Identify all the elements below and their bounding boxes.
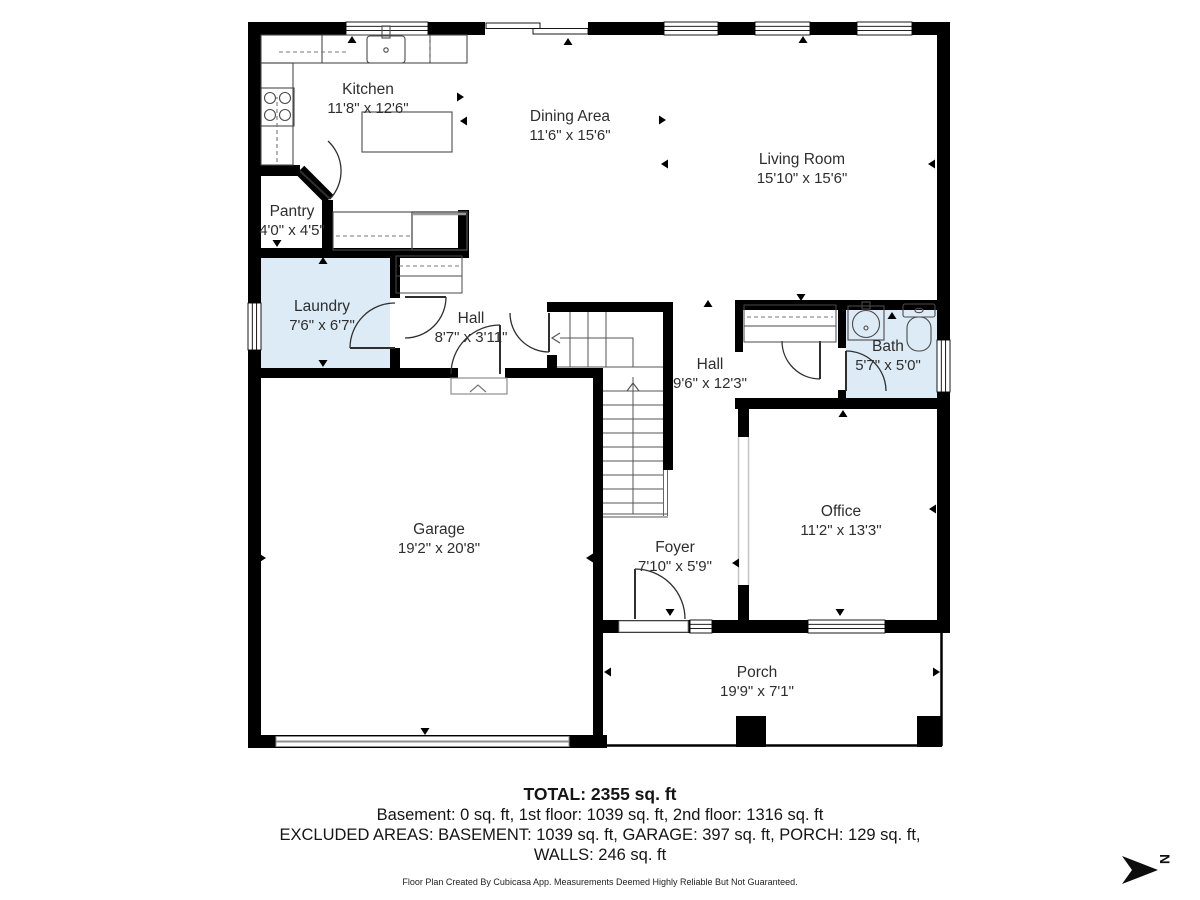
room-label-dining: Dining Area 11'6" x 15'6"	[529, 107, 610, 145]
living-window-2	[755, 22, 810, 35]
bath-window	[937, 340, 950, 392]
room-label-pantry: Pantry 4'0" x 4'5"	[259, 202, 325, 240]
floor-areas: Basement: 0 sq. ft, 1st floor: 1039 sq. …	[0, 805, 1200, 825]
room-label-porch: Porch 19'9" x 7'1"	[720, 663, 794, 701]
front-door	[635, 569, 685, 619]
room-dims: 7'6" x 6'7"	[289, 316, 355, 335]
total-area: TOTAL: 2355 sq. ft	[0, 784, 1200, 805]
floor-plan-page: Kitchen 11'8" x 12'6" Dining Area 11'6" …	[0, 0, 1200, 900]
kitchen-island	[362, 112, 452, 152]
room-name: Laundry	[289, 297, 355, 316]
thresholds	[451, 378, 688, 632]
stove-icon	[261, 88, 294, 126]
room-dims: 9'6" x 12'3"	[673, 374, 747, 393]
room-label-hall-large: Hall 9'6" x 12'3"	[673, 355, 747, 393]
room-name: Bath	[855, 337, 921, 356]
area-summary: TOTAL: 2355 sq. ft Basement: 0 sq. ft, 1…	[0, 784, 1200, 888]
stairs	[552, 312, 668, 517]
disclaimer-text: Floor Plan Created By Cubicasa App. Meas…	[0, 877, 1200, 888]
room-dims: 11'8" x 12'6"	[327, 99, 408, 118]
room-dims: 19'2" x 20'8"	[398, 539, 480, 558]
compass-north-label: N	[1157, 854, 1173, 864]
room-name: Living Room	[757, 150, 848, 169]
garage-door	[276, 737, 569, 747]
room-dims: 8'7" x 3'11"	[435, 328, 508, 347]
room-name: Dining Area	[529, 107, 610, 126]
room-dims: 15'10" x 15'6"	[757, 169, 848, 188]
kitchen-lower-counter	[333, 212, 467, 250]
office-window	[808, 620, 885, 633]
living-window-3	[857, 22, 912, 35]
room-label-living: Living Room 15'10" x 15'6"	[757, 150, 848, 188]
foyer-sidelight-window	[690, 620, 712, 633]
room-dims: 11'2" x 13'3"	[800, 521, 881, 540]
living-window-1	[664, 22, 718, 35]
porch-pillar	[917, 716, 942, 747]
room-name: Porch	[720, 663, 794, 682]
room-label-hall-small: Hall 8'7" x 3'11"	[435, 309, 508, 347]
room-label-office: Office 11'2" x 13'3"	[800, 502, 881, 540]
porch-pillar	[736, 716, 766, 747]
room-name: Pantry	[259, 202, 325, 221]
kitchen-counter	[261, 35, 467, 63]
room-name: Garage	[398, 520, 480, 539]
laundry-window	[248, 303, 261, 350]
room-name: Hall	[435, 309, 508, 328]
excluded-areas: EXCLUDED AREAS: BASEMENT: 1039 sq. ft, G…	[0, 825, 1200, 845]
room-dims: 19'9" x 7'1"	[720, 682, 794, 701]
room-label-foyer: Foyer 7'10" x 5'9"	[638, 538, 712, 576]
hall-closet	[396, 256, 462, 293]
room-dims: 5'7" x 5'0"	[855, 356, 921, 375]
stairs-direction-arrow-icon	[552, 333, 560, 343]
coat-closet-door	[782, 341, 820, 379]
room-label-bath: Bath 5'7" x 5'0"	[855, 337, 921, 375]
room-dims: 4'0" x 4'5"	[259, 221, 325, 240]
room-label-laundry: Laundry 7'6" x 6'7"	[289, 297, 355, 335]
sliding-door	[485, 22, 588, 35]
stair-door	[510, 313, 549, 352]
front-door-threshold	[619, 621, 688, 632]
room-name: Foyer	[638, 538, 712, 557]
room-name: Hall	[673, 355, 747, 374]
room-label-garage: Garage 19'2" x 20'8"	[398, 520, 480, 558]
kitchen-side-counter	[261, 63, 293, 165]
room-name: Kitchen	[327, 80, 408, 99]
room-dims: 11'6" x 15'6"	[529, 126, 610, 145]
room-label-kitchen: Kitchen 11'8" x 12'6"	[327, 80, 408, 118]
walls-area: WALLS: 246 sq. ft	[0, 845, 1200, 865]
room-name: Office	[800, 502, 881, 521]
coat-closet	[744, 305, 836, 342]
kitchen-sink-window	[346, 22, 428, 35]
room-dims: 7'10" x 5'9"	[638, 557, 712, 576]
